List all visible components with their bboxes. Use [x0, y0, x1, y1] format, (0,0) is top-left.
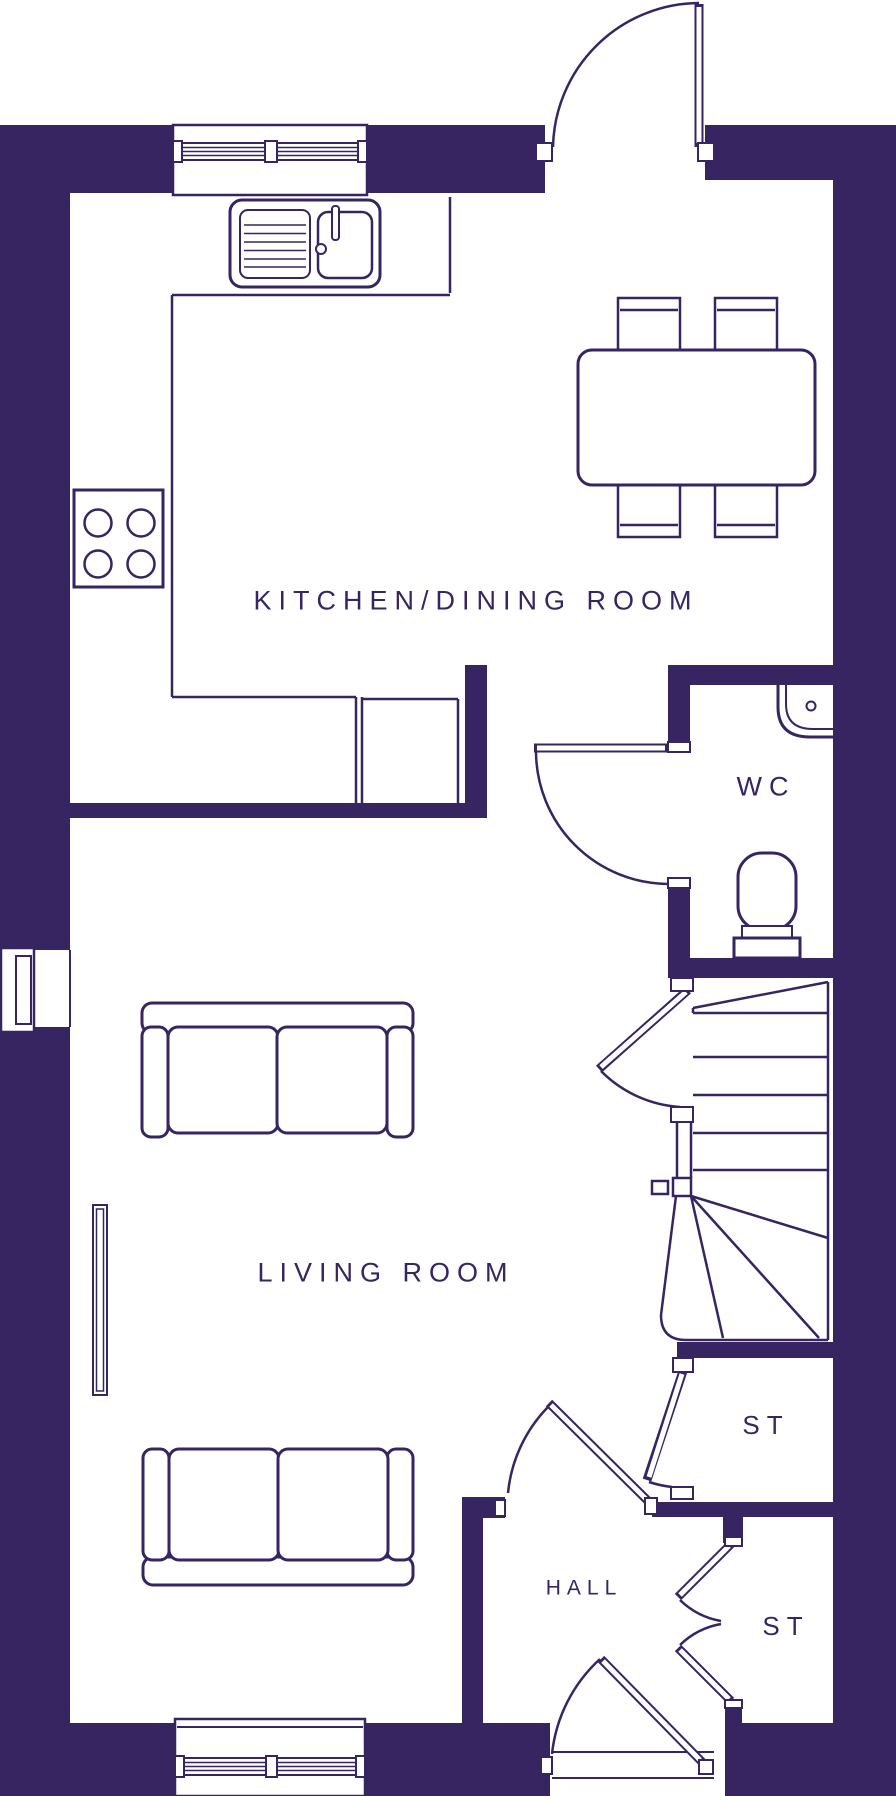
- wc-door: [534, 742, 690, 888]
- wc-basin: [778, 685, 833, 737]
- storage2-double-doors: [678, 1537, 742, 1708]
- room-label-storage-1: ST: [742, 1412, 789, 1438]
- flue-wall-gap: [34, 950, 70, 1027]
- storage1-door: [647, 1358, 693, 1499]
- window-top: [173, 125, 367, 195]
- room-label-hall: HALL: [546, 1578, 623, 1599]
- room-label-kitchen-dining: KITCHEN/DINING ROOM: [253, 588, 698, 615]
- staircase: [652, 982, 828, 1340]
- hall-door: [495, 1403, 657, 1516]
- window-bottom: [175, 1719, 365, 1796]
- room-label-living-room: LIVING ROOM: [257, 1260, 514, 1287]
- radiator: [93, 1205, 107, 1395]
- sofa-bottom: [143, 1449, 413, 1585]
- kitchen-sink: [230, 200, 380, 287]
- room-label-storage-2: ST: [762, 1613, 809, 1639]
- floor-plan-drawing: [0, 0, 896, 1796]
- room-label-wc: WC: [737, 774, 796, 801]
- hob: [74, 490, 163, 587]
- floor-plan: KITCHEN/DINING ROOM WC LIVING ROOM ST HA…: [0, 0, 896, 1796]
- dining-table: [578, 350, 815, 485]
- sofa-top: [142, 1003, 413, 1137]
- living-room-door: [599, 978, 693, 1122]
- wc-toilet: [734, 853, 800, 958]
- back-door: [536, 3, 714, 161]
